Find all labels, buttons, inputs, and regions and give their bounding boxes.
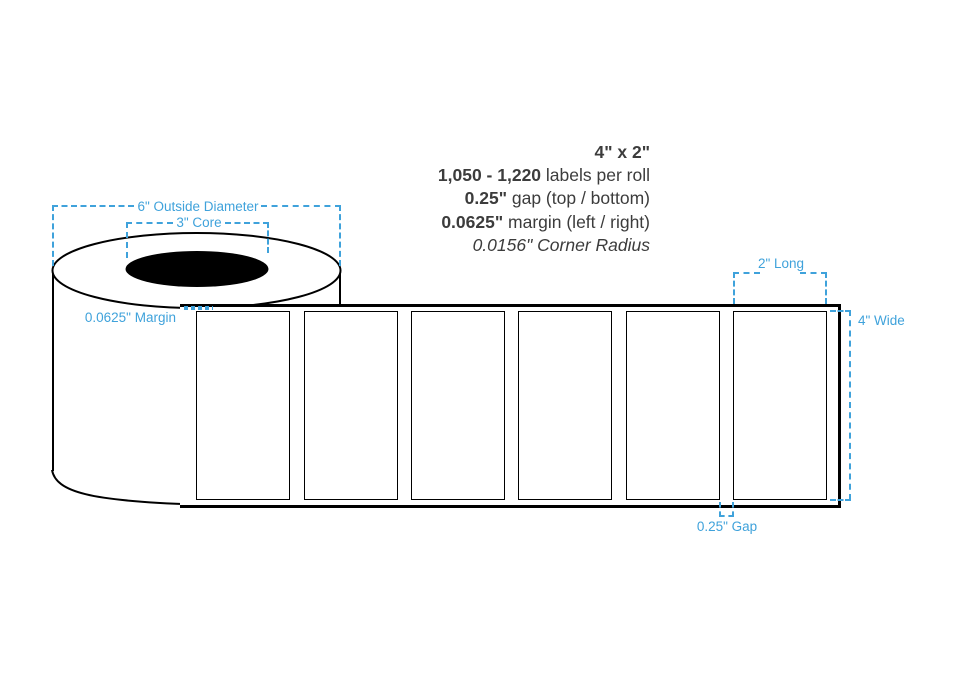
- roll-core: [126, 251, 269, 287]
- dim-gap-bracket: [719, 502, 734, 517]
- dim-core-tick-right: [267, 222, 269, 253]
- dim-wide-tick-bottom: [830, 499, 851, 501]
- dim-core-line-left: [126, 222, 173, 224]
- dim-long-tick-left: [733, 272, 735, 304]
- label-roll-diagram: 4" x 2" 1,050 - 1,220 labels per roll 0.…: [0, 0, 962, 694]
- dim-gap-label: 0.25" Gap: [697, 519, 757, 534]
- blank-label: [518, 311, 612, 500]
- dim-long-line-left: [733, 272, 760, 274]
- dim-wide-line: [849, 310, 851, 500]
- dim-margin-label: 0.0625" Margin: [85, 310, 176, 325]
- blank-label: [411, 311, 505, 500]
- blank-label: [733, 311, 827, 500]
- dim-od-tick-right: [339, 205, 341, 266]
- dim-long-tick-right: [825, 272, 827, 304]
- dim-od-tick-left: [52, 205, 54, 266]
- dim-od-line-right: [261, 205, 341, 207]
- blank-label: [304, 311, 398, 500]
- dim-wide-label: 4" Wide: [858, 313, 905, 328]
- blank-label: [626, 311, 720, 500]
- dim-margin-tick: [184, 306, 213, 310]
- dim-long-line-right: [800, 272, 827, 274]
- dim-wide-tick-top: [830, 310, 851, 312]
- dim-core-label: 3" Core: [176, 215, 221, 230]
- dim-core-tick-left: [126, 222, 128, 258]
- dim-core-line-right: [225, 222, 269, 224]
- blank-label: [196, 311, 290, 500]
- dim-od-line-left: [52, 205, 134, 207]
- dim-long-label: 2" Long: [758, 256, 804, 271]
- dim-outside-diameter-label: 6" Outside Diameter: [137, 199, 258, 214]
